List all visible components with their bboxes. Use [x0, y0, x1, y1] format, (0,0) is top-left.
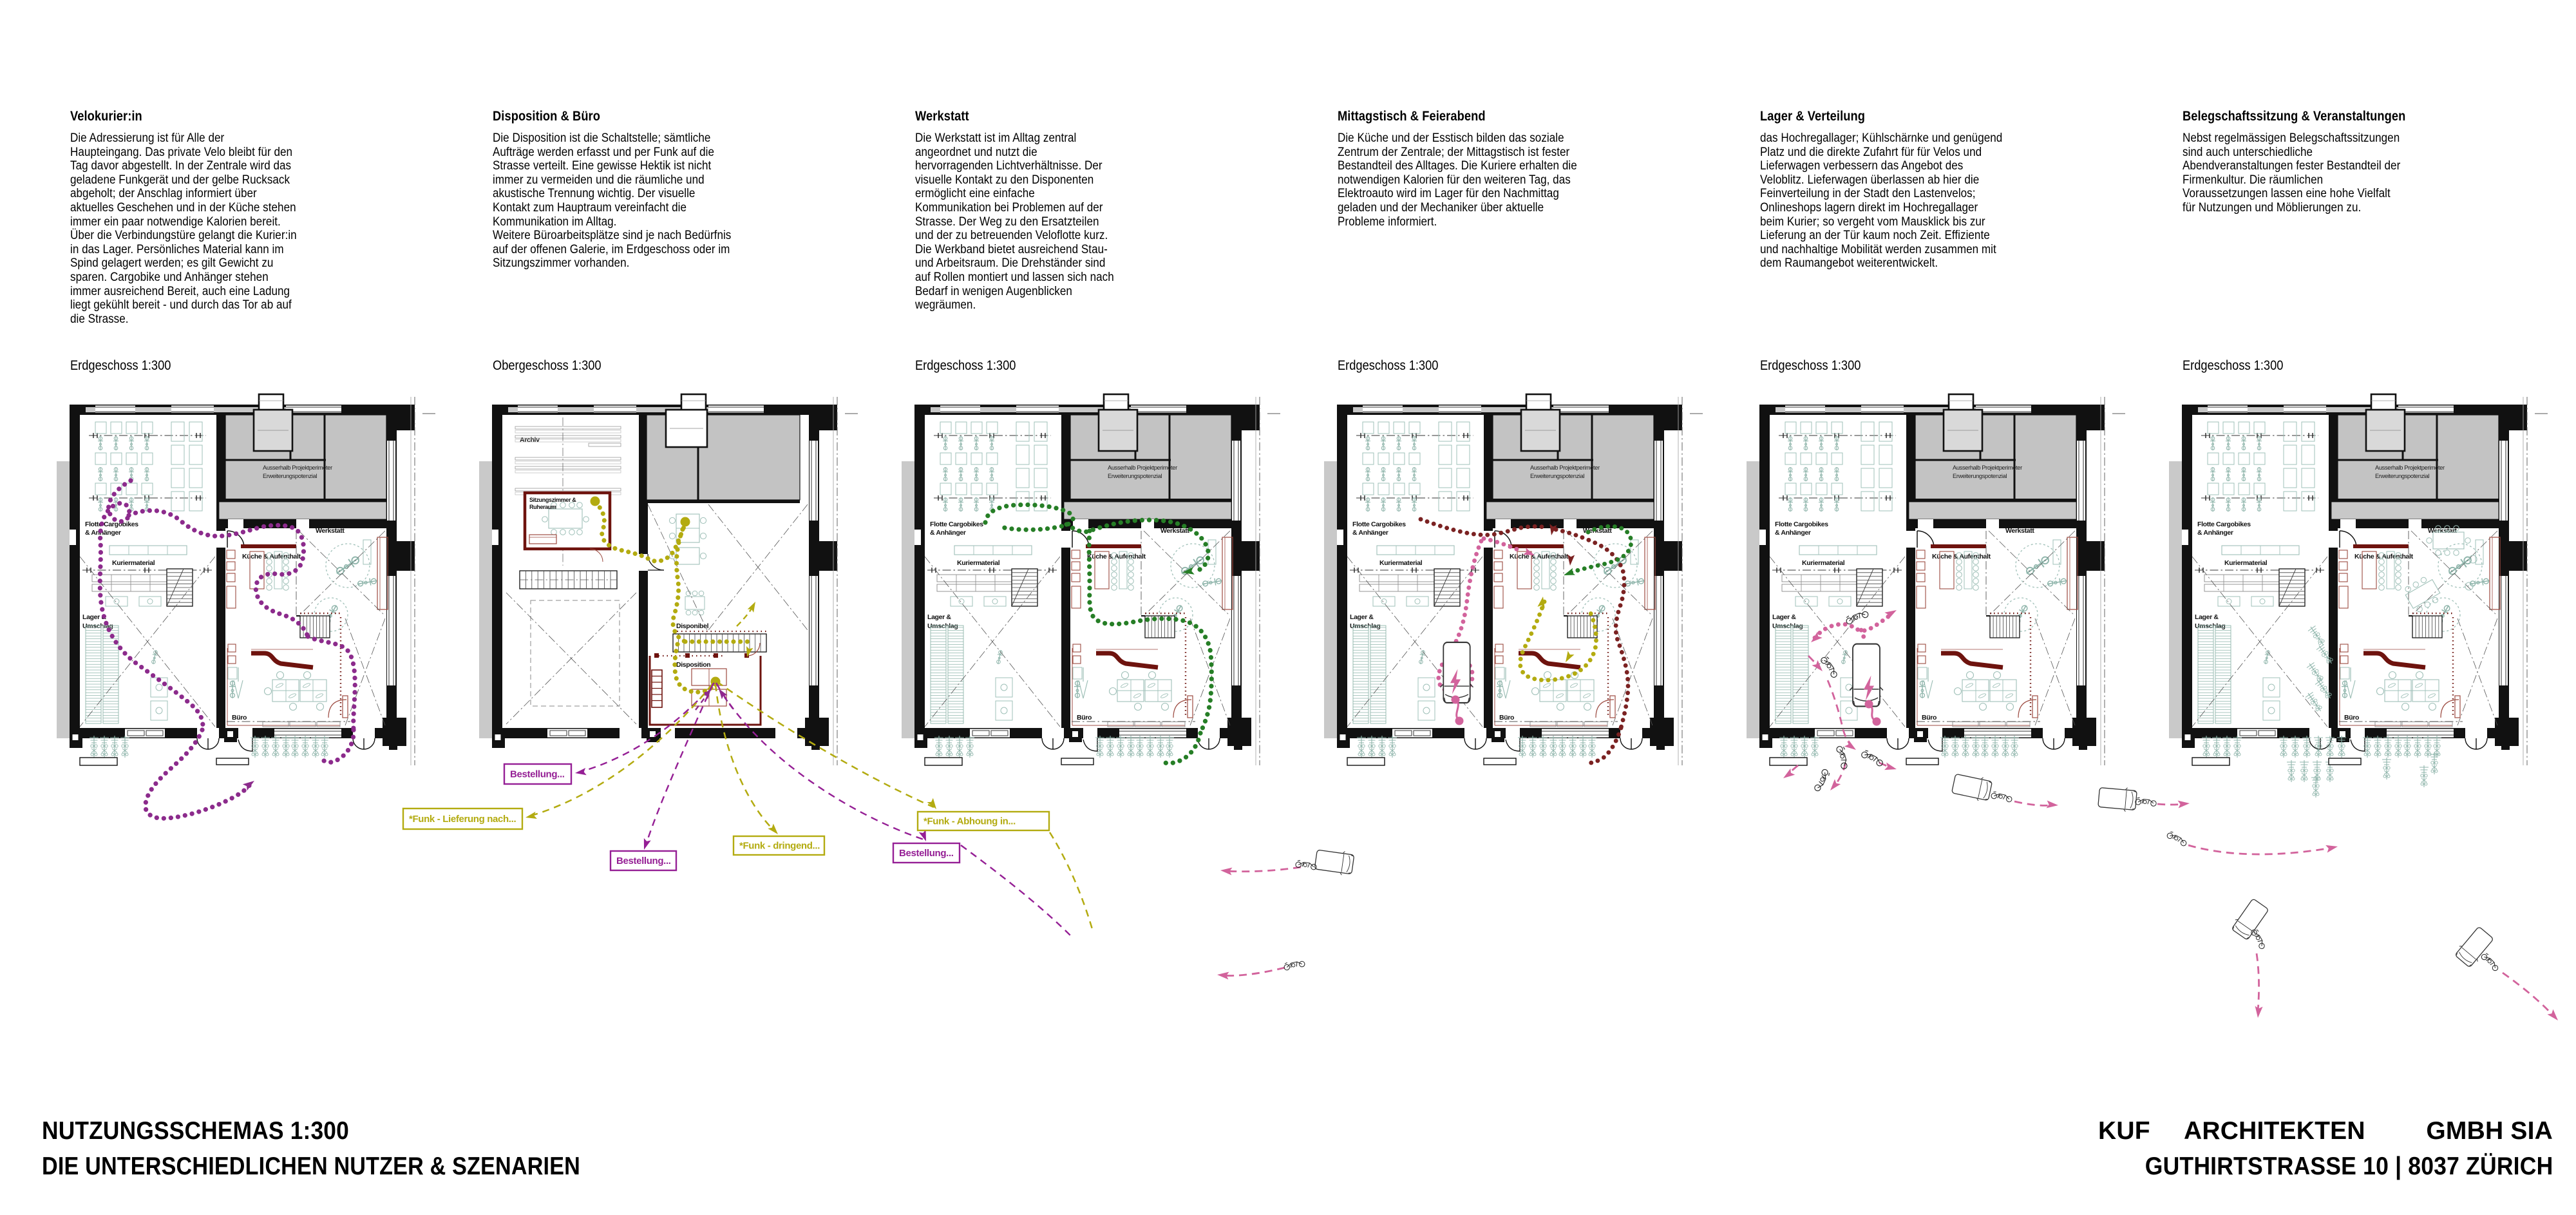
svg-text:*Funk - Lieferung nach...: *Funk - Lieferung nach... — [409, 814, 516, 825]
svg-text:Bestellung...: Bestellung... — [616, 856, 671, 866]
svg-text:Bestellung...: Bestellung... — [899, 848, 954, 859]
svg-text:*Funk - Abhoung in...: *Funk - Abhoung in... — [923, 816, 1016, 827]
svg-text:*Funk - dringend...: *Funk - dringend... — [739, 841, 820, 852]
svg-text:Bestellung...: Bestellung... — [510, 769, 565, 780]
